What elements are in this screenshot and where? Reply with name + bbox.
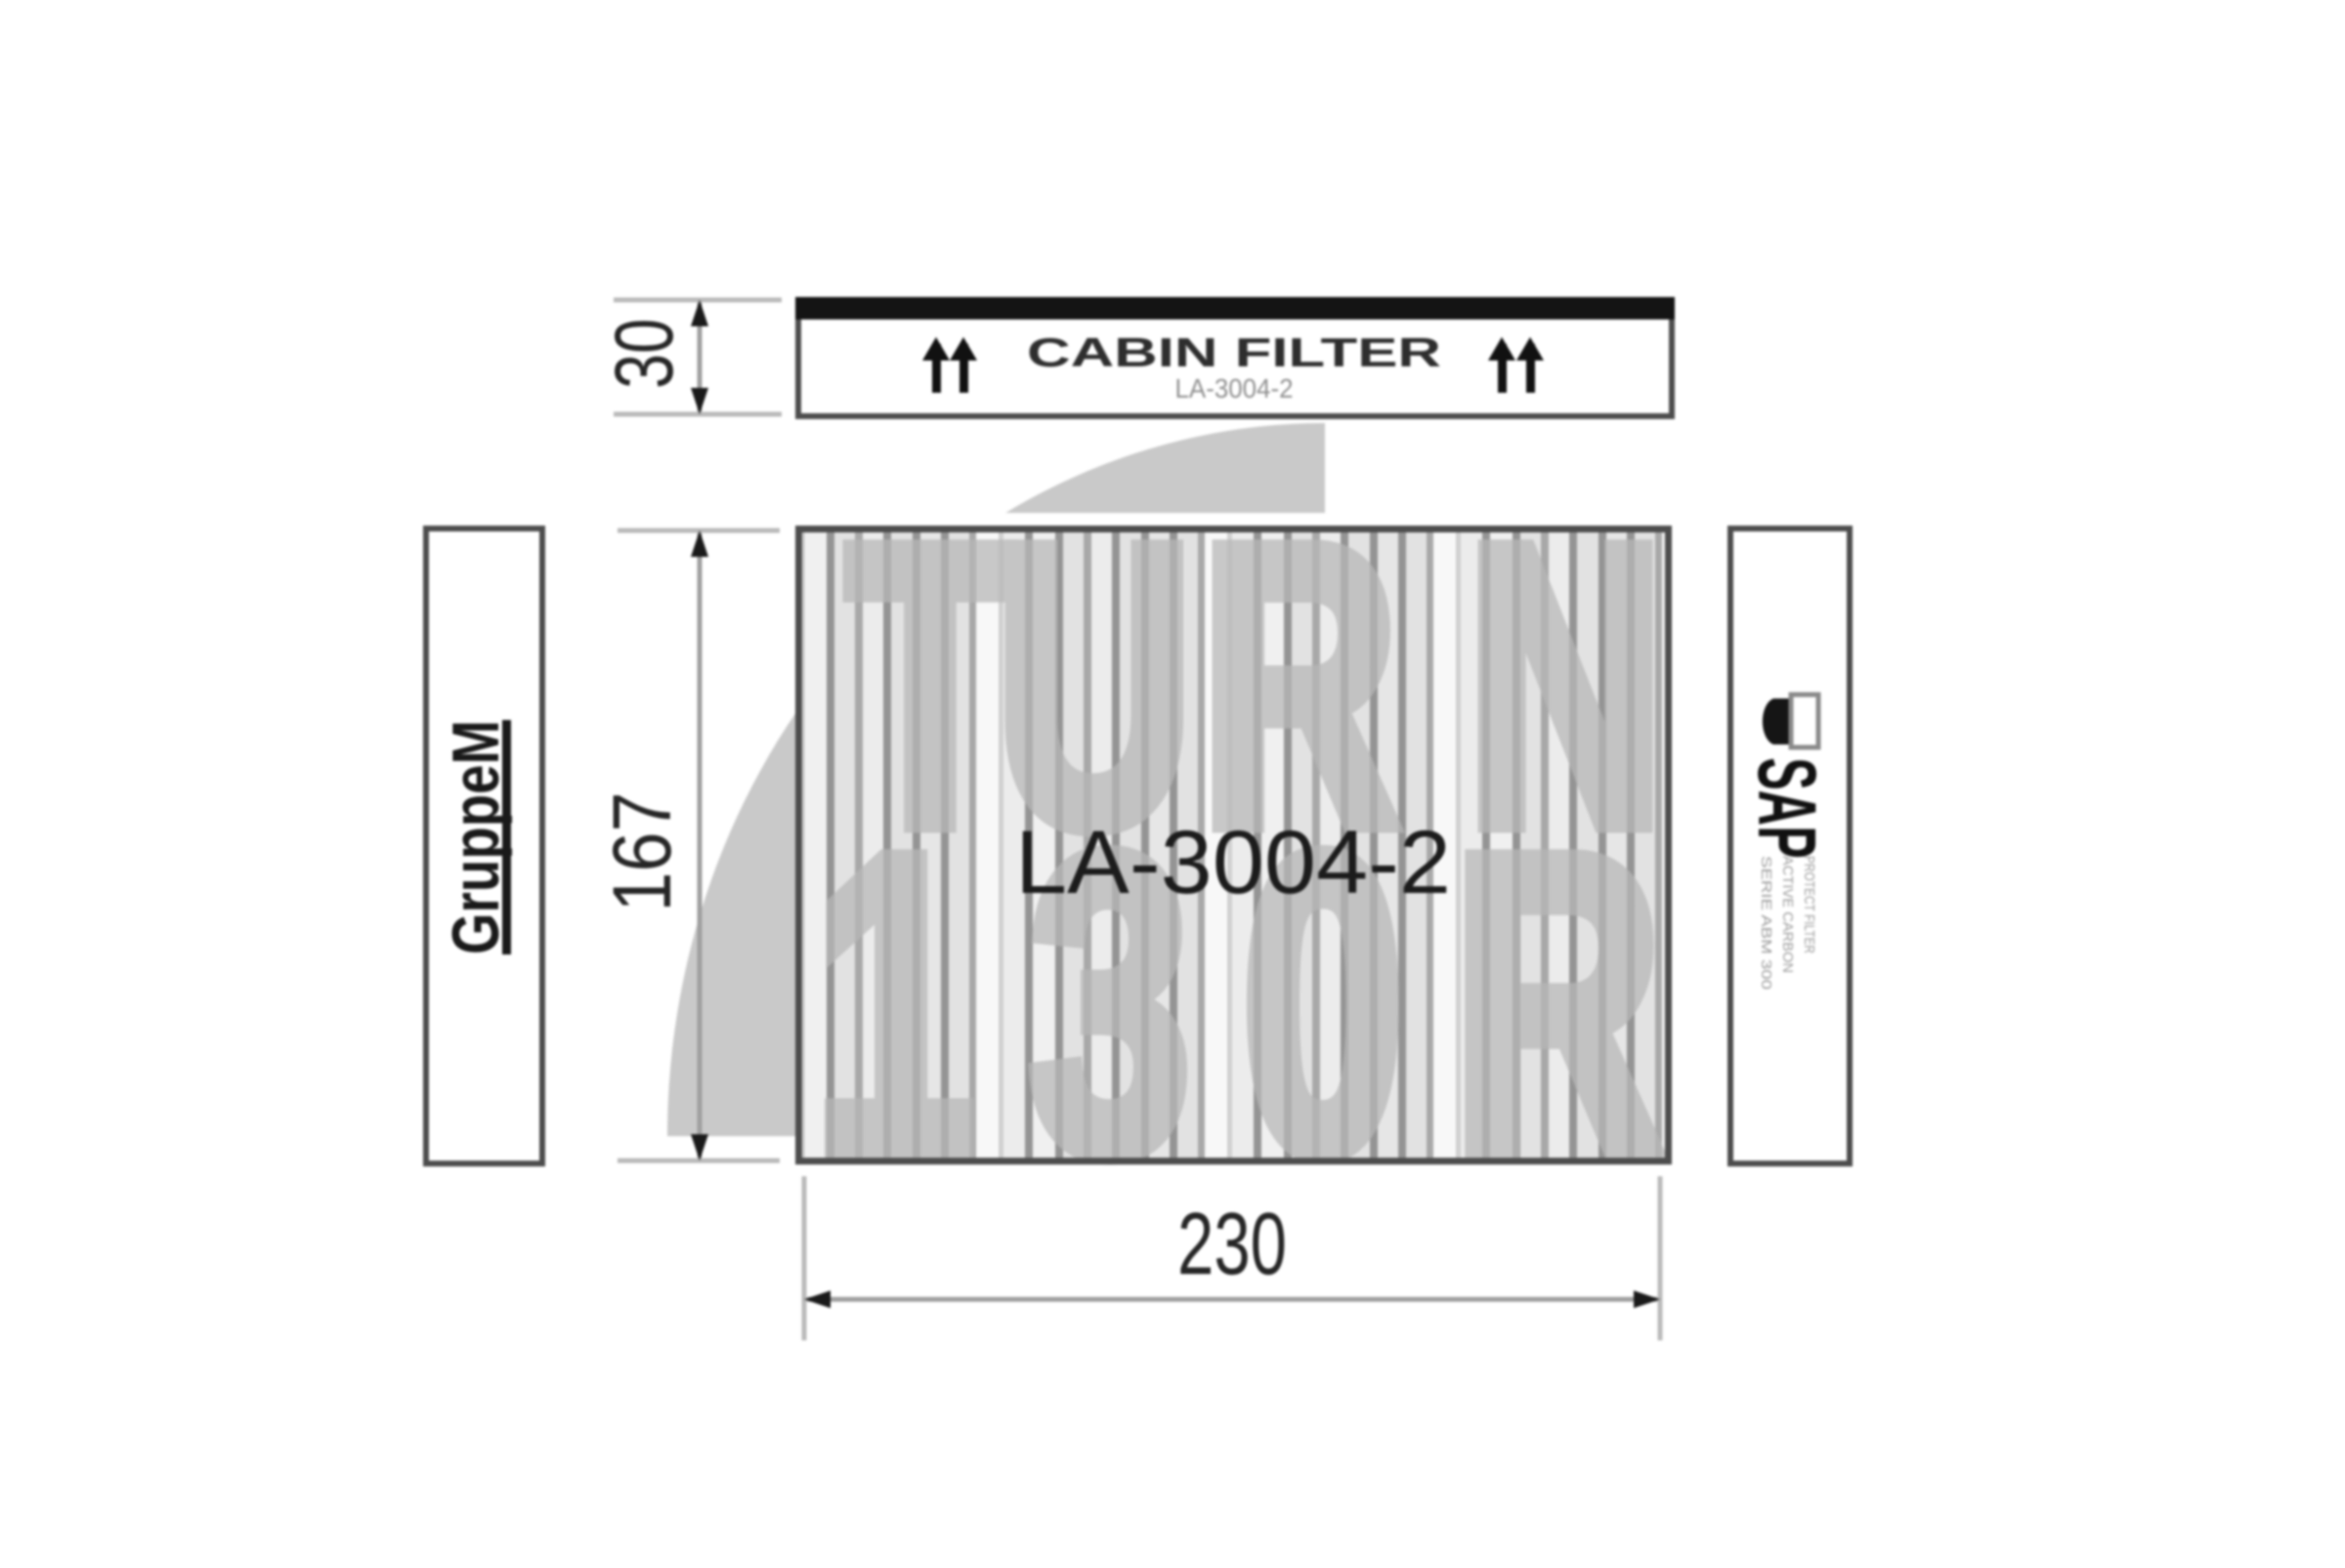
- svg-text:1: 1: [813, 768, 976, 1242]
- svg-text:SERIE ABM 300: SERIE ABM 300: [1758, 856, 1774, 990]
- svg-text:30: 30: [598, 318, 690, 389]
- svg-text:PROTECT FILTER: PROTECT FILTER: [1801, 856, 1817, 954]
- svg-text:LA-3004-2: LA-3004-2: [1175, 373, 1294, 403]
- svg-text:167: 167: [596, 792, 688, 912]
- svg-text:LA-3004-2: LA-3004-2: [1015, 813, 1451, 912]
- svg-text:ACTIVE CARBON: ACTIVE CARBON: [1779, 856, 1796, 973]
- svg-text:GruppeM: GruppeM: [439, 720, 513, 954]
- svg-text:CABIN FILTER: CABIN FILTER: [1027, 329, 1441, 375]
- svg-text:R: R: [1452, 768, 1664, 1242]
- svg-text:SAP: SAP: [1741, 757, 1834, 859]
